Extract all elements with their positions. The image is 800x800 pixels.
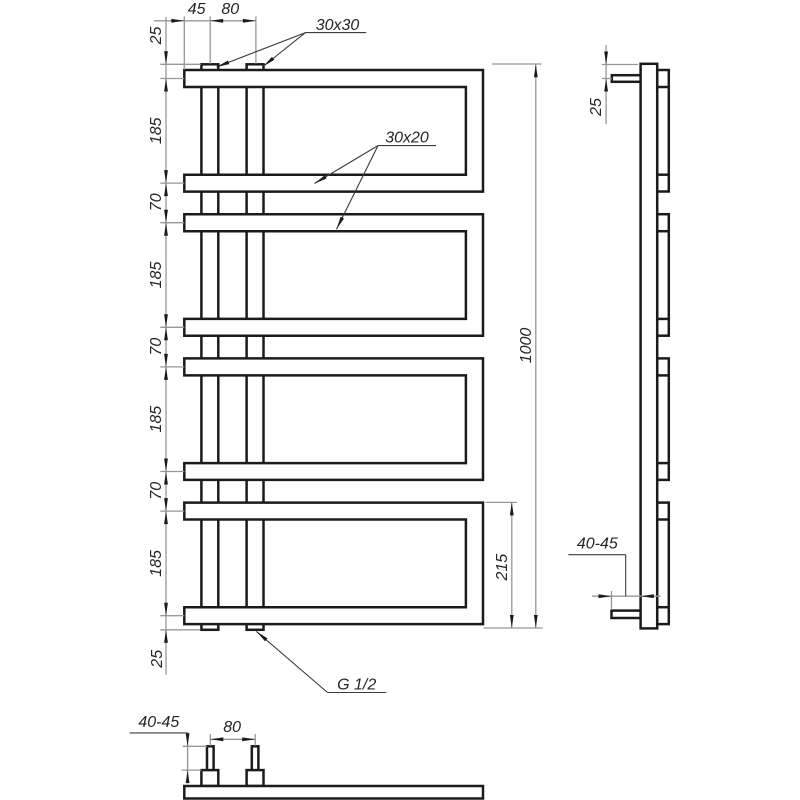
svg-text:185: 185 [148, 550, 165, 577]
svg-text:185: 185 [148, 262, 165, 289]
svg-text:45: 45 [188, 1, 206, 18]
svg-text:25: 25 [149, 650, 166, 669]
svg-text:70: 70 [148, 338, 165, 356]
svg-text:25: 25 [148, 27, 165, 46]
svg-text:185: 185 [148, 406, 165, 433]
svg-text:1000: 1000 [518, 328, 535, 364]
svg-text:80: 80 [223, 719, 241, 736]
svg-text:30x30: 30x30 [316, 17, 360, 34]
svg-text:215: 215 [494, 554, 511, 582]
svg-text:25: 25 [588, 98, 605, 117]
svg-text:G 1/2: G 1/2 [337, 676, 376, 693]
svg-text:30x20: 30x20 [385, 129, 429, 146]
svg-text:40-45: 40-45 [577, 535, 618, 552]
svg-text:40-45: 40-45 [138, 714, 179, 731]
svg-text:80: 80 [221, 1, 239, 18]
svg-text:70: 70 [148, 193, 165, 211]
svg-text:70: 70 [148, 482, 165, 500]
svg-text:185: 185 [148, 117, 165, 144]
